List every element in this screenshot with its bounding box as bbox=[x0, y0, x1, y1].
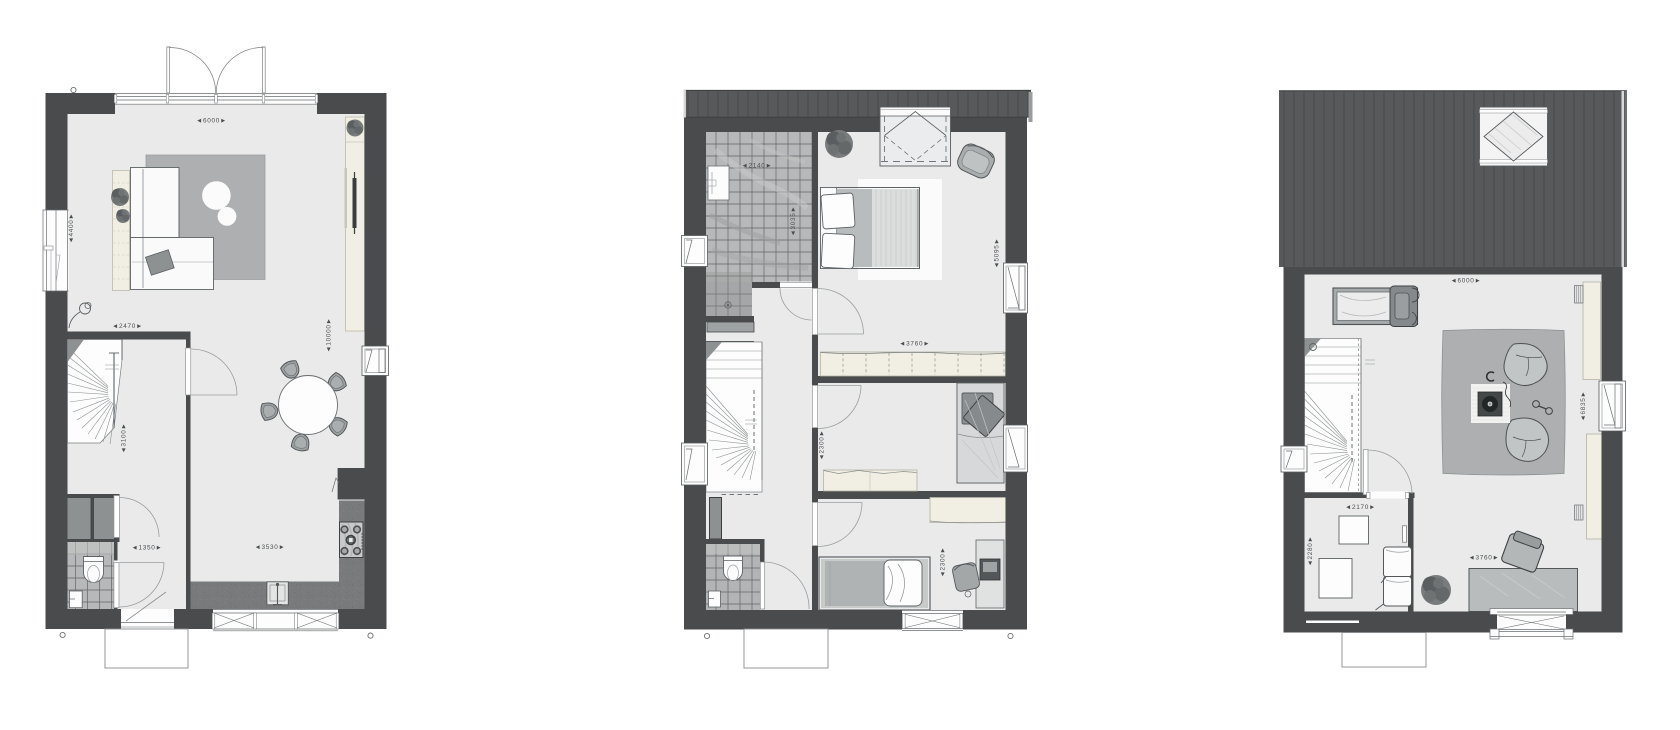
svg-text:◄2170►: ◄2170► bbox=[1345, 504, 1376, 511]
svg-text:◄3760►: ◄3760► bbox=[1468, 555, 1499, 562]
svg-text:◄1350►: ◄1350► bbox=[131, 545, 162, 552]
svg-text:◄3100►: ◄3100► bbox=[120, 422, 127, 453]
svg-text:◄2280►: ◄2280► bbox=[1307, 535, 1314, 566]
svg-text:◄2300►: ◄2300► bbox=[939, 546, 946, 577]
svg-text:◄10000►: ◄10000► bbox=[326, 317, 333, 352]
svg-text:◄2300►: ◄2300► bbox=[818, 429, 825, 460]
svg-text:◄2140►: ◄2140► bbox=[741, 163, 772, 170]
svg-text:◄5095►: ◄5095► bbox=[994, 237, 1001, 268]
svg-text:◄6835►: ◄6835► bbox=[1580, 390, 1587, 421]
svg-text:◄3035►: ◄3035► bbox=[790, 205, 797, 236]
svg-text:◄6000►: ◄6000► bbox=[196, 118, 227, 125]
svg-text:◄3760►: ◄3760► bbox=[899, 341, 930, 348]
svg-text:◄4400►: ◄4400► bbox=[68, 212, 75, 243]
svg-text:◄6000►: ◄6000► bbox=[1450, 278, 1481, 285]
svg-text:◄3530►: ◄3530► bbox=[254, 544, 285, 551]
svg-text:◄2470►: ◄2470► bbox=[112, 323, 143, 330]
